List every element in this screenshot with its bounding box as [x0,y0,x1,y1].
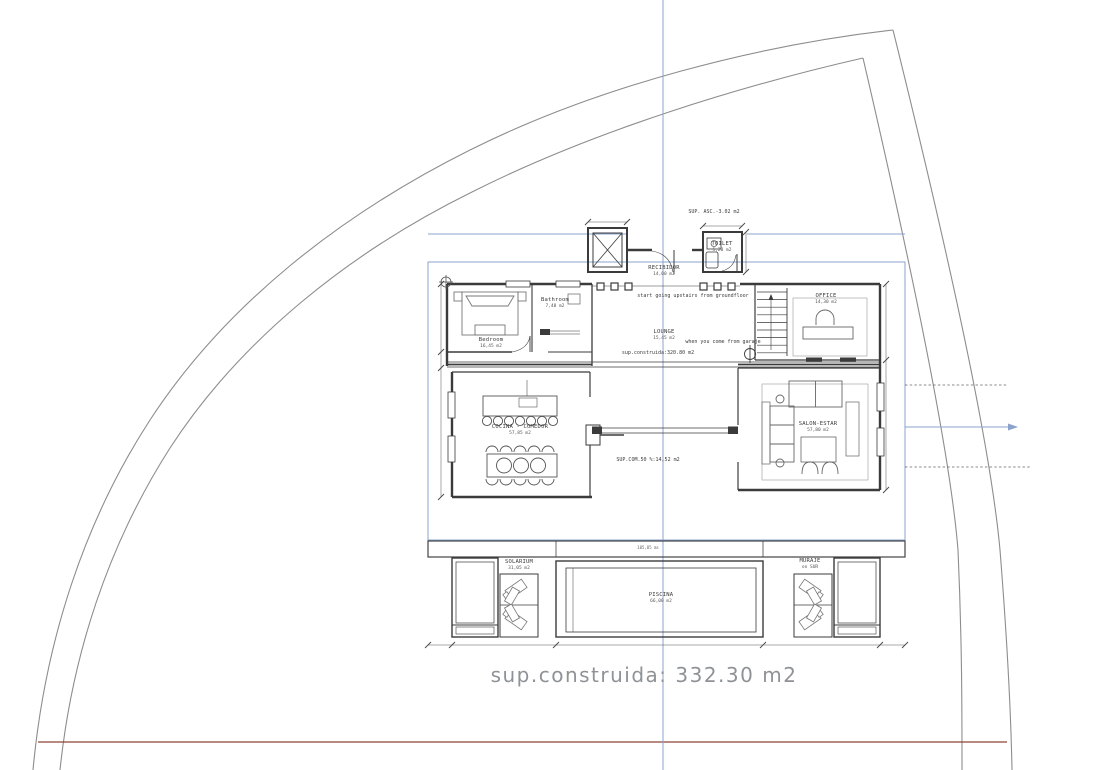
site-boundary [33,30,1012,770]
sup-com-note: SUP.COM.50 %:14,52 m2 [616,457,679,463]
room-label-recibidor: RECIBIDOR 14,00 m2 [648,265,680,278]
bed-icon [454,292,526,335]
solarium-deck-right [794,574,832,637]
kitchen-island-icon [482,380,557,426]
room-label-bathroom: Bathroom 7,48 m2 [541,297,569,310]
terrace-band [428,541,905,557]
elevator-icon [588,228,627,272]
room-label-piscina: PISCINA 66,00 m2 [649,592,674,605]
wc-icon [706,252,718,268]
stairs-note: start going upstairs from groundfloor [637,293,748,299]
terrace-dim-text: 105,85 ms [637,545,659,550]
room-label-office: OFFICE 14,30 m2 [815,293,837,306]
dining-table-icon [486,446,557,485]
office-desk-icon [793,298,867,356]
pouf-icon [802,462,818,474]
room-label-salon: SALON-ESTAR 57,80 m2 [799,421,838,434]
arrow-icon [1008,424,1018,431]
room-label-lounge: LOUNGE 15,45 m2 [653,329,675,342]
planter-right [834,558,880,637]
column-markers [597,283,735,290]
floor-plan-page: SUP. ASC.-3.02 m2 TOILET 5,20 m2 RECIBID… [0,0,1096,770]
floor-plan-drawing [0,0,1096,770]
room-label-solarium: SOLARIUM 31,05 m2 [505,559,533,572]
room-label-bedroom: Bedroom 16,45 m2 [479,337,504,350]
garaje-note: when you come from garaje [685,339,760,345]
room-label-toilet: TOILET 5,20 m2 [711,241,732,254]
stairs-icon [745,288,788,363]
room-label-muraje: MURAJE on SUR [799,558,820,571]
construida-note: sup.construida:320.80 m2 [622,350,694,356]
pouf-icon [822,462,838,474]
room-label-cocina: COCINA - COMEDOR 57,85 m2 [492,424,548,437]
total-area-text: sup.construida: 332.30 m2 [491,663,798,687]
planter-left [452,558,498,637]
sup-asc-note: SUP. ASC.-3.02 m2 [688,209,739,215]
